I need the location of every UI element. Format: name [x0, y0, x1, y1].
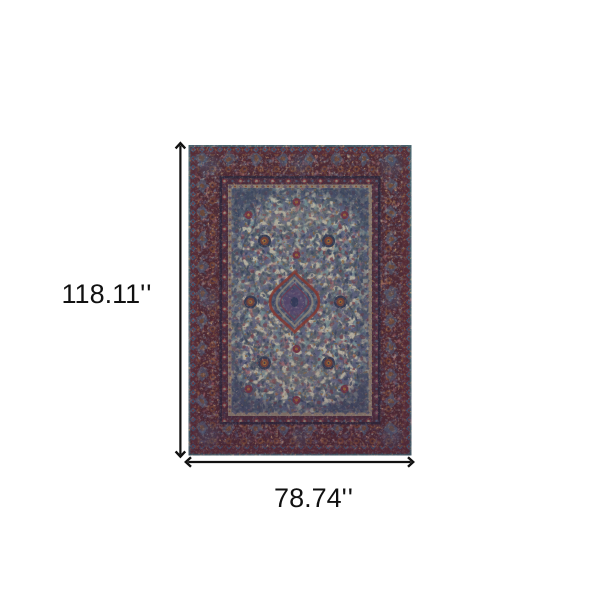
svg-text:118.11'': 118.11'' [62, 279, 152, 309]
svg-text:78.74'': 78.74'' [274, 483, 353, 513]
